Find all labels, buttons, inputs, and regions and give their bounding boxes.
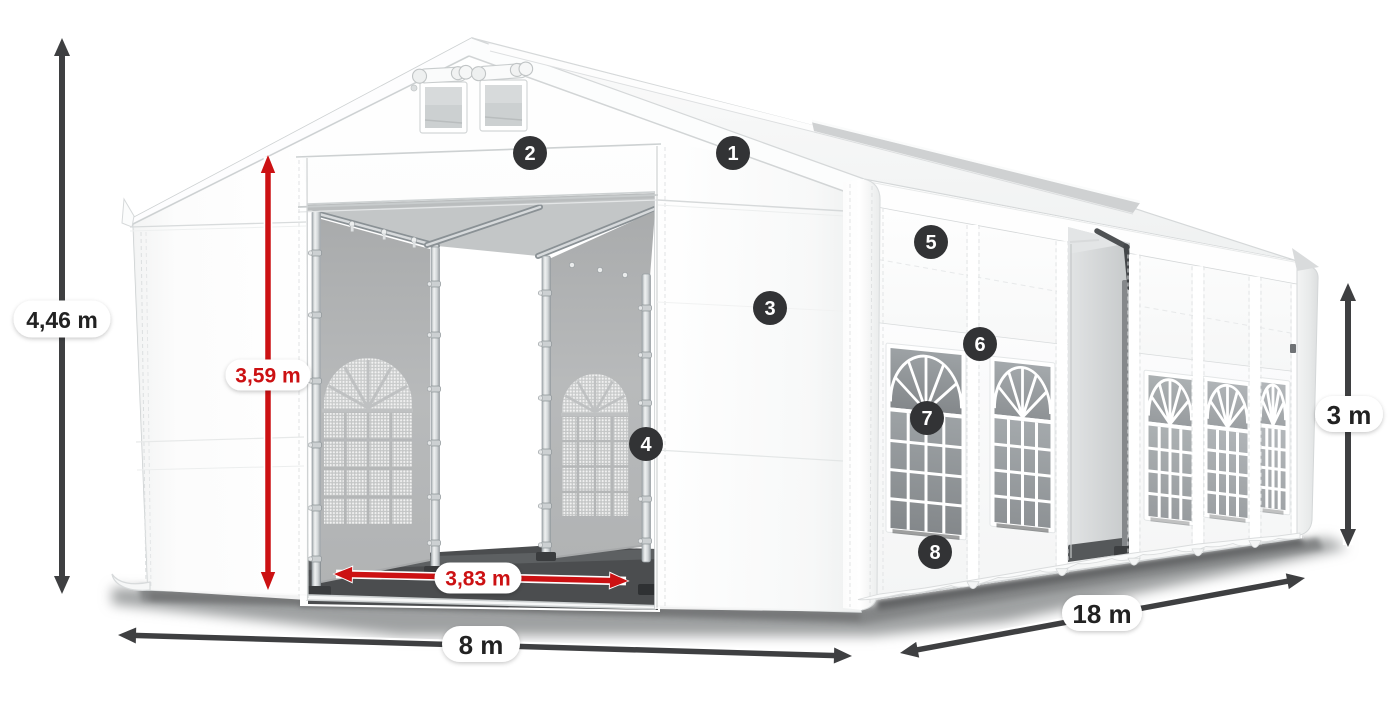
svg-text:5: 5 xyxy=(925,232,936,254)
svg-text:3,83 m: 3,83 m xyxy=(445,568,510,591)
svg-text:1: 1 xyxy=(727,143,738,165)
svg-text:3 m: 3 m xyxy=(1327,400,1372,430)
svg-text:18 m: 18 m xyxy=(1072,599,1131,629)
svg-text:6: 6 xyxy=(974,334,985,356)
svg-text:8 m: 8 m xyxy=(459,630,504,660)
svg-text:4,46 m: 4,46 m xyxy=(26,307,98,333)
svg-text:3,59 m: 3,59 m xyxy=(235,365,300,388)
svg-text:4: 4 xyxy=(640,434,652,456)
svg-text:8: 8 xyxy=(929,542,940,564)
svg-text:7: 7 xyxy=(921,408,932,430)
svg-text:2: 2 xyxy=(524,143,535,165)
svg-text:3: 3 xyxy=(764,298,775,320)
